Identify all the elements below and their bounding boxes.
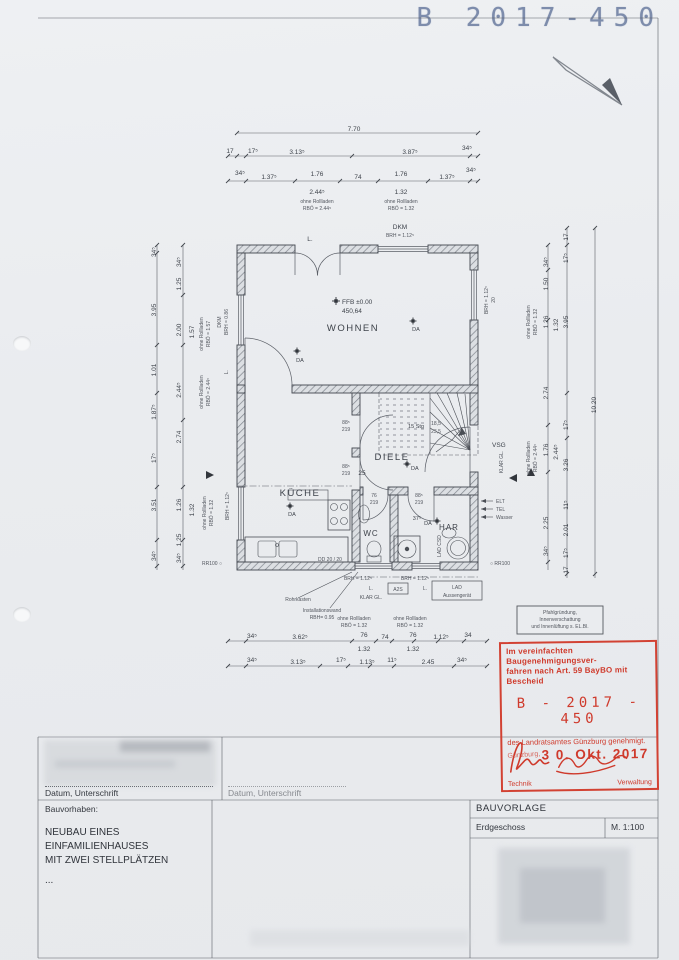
note-label: ohne Rollladen xyxy=(384,199,418,205)
svg-text:Innenverschattung: Innenverschattung xyxy=(539,617,580,623)
dim-label: 1.26 xyxy=(176,498,183,511)
dim-label: 34⁵ xyxy=(543,546,550,556)
signature-right xyxy=(557,756,627,775)
note-label: RBÖ = 2.44⁵ xyxy=(205,378,212,406)
level-label: 450,64 xyxy=(342,308,362,315)
dim-label: 1.12⁵ xyxy=(433,634,449,641)
stamp-text-line: Im vereinfachten Baugenehmigungsver- xyxy=(506,645,650,667)
dim-label: 2.44⁵ xyxy=(176,382,183,398)
project-line: EINFAMILIENHAUSES xyxy=(45,840,168,854)
glass-label: KLAR GL. xyxy=(360,595,383,601)
da-label: DA xyxy=(288,512,296,518)
project-line: ... xyxy=(45,874,168,888)
note-label: RBÖ = 1.57 xyxy=(205,321,212,347)
note-label: ohne Rollladen xyxy=(202,496,208,530)
dim-label: 1.76 xyxy=(543,443,550,456)
note-label: DD 20 / 20 xyxy=(318,557,342,563)
dim-label: 1.26 xyxy=(543,315,550,328)
dim-label: 34⁵ xyxy=(543,257,550,267)
note-label: ohne Rollladen xyxy=(526,305,532,339)
stamp-text-line: fahren nach Art. 59 BayBO mit Bescheid xyxy=(506,665,650,687)
dim-label: 34⁵ xyxy=(235,170,245,177)
stamp-file-number: B - 2017 - 450 xyxy=(507,694,651,728)
da-label: DA xyxy=(296,358,304,364)
scanned-floorplan-sheet: B 2017-450 xyxy=(0,0,679,960)
dim-label: 17 xyxy=(563,233,570,241)
note-label: Installationswand xyxy=(303,608,342,614)
dim-label: 17⁵ xyxy=(563,548,570,558)
dim-label: 34⁵ xyxy=(176,553,183,563)
dim-label: 3.13⁵ xyxy=(290,659,306,666)
note-label: RBÖ = 2.44⁵ xyxy=(303,205,331,212)
note-label: RBÖ = 1.32 xyxy=(532,309,539,335)
dim-label: 76 xyxy=(409,632,417,639)
dim-label: 7.70 xyxy=(348,126,361,133)
dim-label: 34 xyxy=(464,632,472,639)
dim-label: 34⁵ xyxy=(466,167,476,174)
dim-label: 1.37⁵ xyxy=(439,174,455,181)
note-label: ohne Rollladen xyxy=(526,441,532,475)
svg-text:Pfahlgründung,: Pfahlgründung, xyxy=(543,610,577,616)
bauvorlage-label: BAUVORLAGE xyxy=(476,803,546,814)
dim-label: 25 xyxy=(358,470,366,477)
dim-label: 34⁵ xyxy=(247,633,257,640)
dim-label: 17⁵ xyxy=(563,253,570,263)
stair-label: 15 Stg xyxy=(408,424,424,430)
north-arrow-icon xyxy=(553,57,622,105)
wall-label: DKM xyxy=(217,316,223,327)
dim-label: 3.51 xyxy=(151,498,158,511)
stairs xyxy=(379,393,478,455)
glass-label: KLAR GL. xyxy=(499,451,505,474)
note-label: ohne Rollladen xyxy=(300,199,334,205)
level-label: FFB ±0.00 xyxy=(342,299,373,306)
door-size-label: 88⁵ xyxy=(415,493,423,499)
signature-line xyxy=(228,786,346,787)
dim-label: 2.01 xyxy=(563,523,570,536)
project-line: MIT ZWEI STELLPLÄTZEN xyxy=(45,854,168,868)
note-label: Rohrkasten xyxy=(285,597,311,603)
drain-label: RR100 ○ xyxy=(202,561,222,567)
dim-label: 34⁵ xyxy=(247,657,257,664)
room-label-wohnen: WOHNEN xyxy=(327,323,379,334)
note-label: RBH= 0.95 xyxy=(310,615,335,621)
dim-label: 1.76 xyxy=(311,171,324,178)
wall-label: 20 xyxy=(491,297,497,303)
stair-label: 23,5 xyxy=(431,429,441,435)
har-fixtures xyxy=(394,528,469,562)
wall-label: BRH = 1.12⁵ xyxy=(484,286,490,314)
dim-label: 37⁵ xyxy=(413,515,421,522)
note-label: RBÖ = 1.32 xyxy=(388,205,414,212)
da-label: DA xyxy=(424,521,432,527)
dim-label: 1.01 xyxy=(151,363,158,376)
wall-label: DKM xyxy=(393,224,407,231)
dim-label: 1.13⁵ xyxy=(359,659,375,666)
door-size-label: 219 xyxy=(370,500,379,506)
svg-text:und Innenlüftung s. EL.Bl.: und Innenlüftung s. EL.Bl. xyxy=(531,624,588,630)
wall-label: L. xyxy=(369,586,373,592)
utility-label: TEL xyxy=(496,507,505,513)
project-description: NEUBAU EINES EINFAMILIENHAUSES MIT ZWEI … xyxy=(45,826,168,888)
dim-label: 17 xyxy=(563,566,570,574)
dim-label: 34⁵ xyxy=(457,657,467,664)
dim-label: 3.13⁵ xyxy=(289,149,305,156)
dim-label: 17 xyxy=(226,148,234,155)
stair-label: 18,5 xyxy=(431,421,441,427)
wall-label: BRH = 1.12⁵ xyxy=(401,576,429,582)
dim-label: 2.45 xyxy=(422,659,435,666)
dim-label: 2.74 xyxy=(176,430,183,443)
door-size-label: 219 xyxy=(342,427,351,433)
dim-label: 1.32 xyxy=(358,646,371,653)
dim-label: 3.95 xyxy=(151,303,158,316)
note-label: RBÖ = 1.32 xyxy=(397,622,423,629)
room-label-har: HAR xyxy=(439,523,459,532)
dim-label: 1.25 xyxy=(176,533,183,546)
note-label: ohne Rollladen xyxy=(199,317,205,351)
dim-label: 74 xyxy=(381,634,389,641)
dim-label: 34⁵ xyxy=(176,257,183,267)
dim-label: 1.50 xyxy=(543,277,550,290)
scan-smudge xyxy=(250,930,470,946)
room-label-wc: WC xyxy=(363,529,378,538)
stamp-signatures xyxy=(504,730,655,780)
dim-label: 11⁵ xyxy=(563,500,570,510)
dim-label: 2.74 xyxy=(543,386,550,399)
dim-label: 3.87⁵ xyxy=(402,149,418,156)
approval-stamp: Im vereinfachten Baugenehmigungsver- fah… xyxy=(499,640,659,792)
door-size-label: 88⁵ xyxy=(342,464,350,470)
foundation-note-box: Pfahlgründung, Innenverschattung und Inn… xyxy=(517,606,603,634)
dimension-lines xyxy=(155,131,597,668)
drain-label: ○ RR100 xyxy=(490,561,510,567)
stamp-footer-left: Technik xyxy=(508,781,532,788)
dim-label: 1.32 xyxy=(189,503,196,516)
redacted-text-fragment xyxy=(120,741,210,752)
dim-label: 74 xyxy=(354,174,362,181)
equipment-label: Aussengerät xyxy=(443,593,472,599)
dim-label: 17⁵ xyxy=(336,657,346,664)
dim-label: 1.32 xyxy=(553,318,560,331)
note-label: RBÖ = 1.32 xyxy=(208,500,215,526)
utility-label: Wasser xyxy=(496,515,513,521)
wall-label: BRH = 1.12⁵ xyxy=(386,233,414,239)
dim-label: 3.26 xyxy=(563,458,570,471)
wall-label: BRH = 1.12⁵ xyxy=(344,576,372,582)
bauvorhaben-label: Bauvorhaben: xyxy=(45,804,98,814)
equipment-label: LAD CSD xyxy=(437,535,443,557)
dim-label: 2.25 xyxy=(543,516,550,529)
wall-label: BRH = 1.12⁵ xyxy=(225,492,231,520)
project-line: NEUBAU EINES xyxy=(45,826,168,840)
dim-label: 3.62⁵ xyxy=(292,634,308,641)
kitchen-fixtures xyxy=(245,490,350,562)
dim-label: 11⁵ xyxy=(387,657,397,664)
da-label: DA xyxy=(411,466,419,472)
room-label-kueche: KÜCHE xyxy=(280,488,321,499)
note-label: ohne Rollladen xyxy=(199,375,205,409)
note-label: ohne Rollladen xyxy=(393,616,427,622)
dim-label: 17⁵ xyxy=(151,453,158,463)
dim-label: 1.87⁵ xyxy=(151,404,158,420)
dim-label: 76 xyxy=(360,632,368,639)
dim-label: 2.00 xyxy=(176,323,183,336)
dim-label: 34⁵ xyxy=(151,551,158,561)
wall-label: L. xyxy=(423,586,427,592)
room-label-diele: DIELE xyxy=(375,452,410,463)
stamp-footer-right: Verwaltung xyxy=(617,779,652,786)
wall-label: L. xyxy=(307,236,313,243)
dim-label: 1.76 xyxy=(395,171,408,178)
dim-label: 2.44⁵ xyxy=(309,189,325,196)
utility-label: ELT xyxy=(496,499,505,505)
door-size-label: 219 xyxy=(415,500,424,506)
signature-left xyxy=(510,742,548,772)
dim-label: 1.25 xyxy=(176,277,183,290)
note-label: RBÖ = 2.44⁵ xyxy=(532,444,539,472)
signature-caption-right: Datum, Unterschrift xyxy=(228,788,301,798)
dim-label: 1.37⁵ xyxy=(261,174,277,181)
dim-label: 1.57 xyxy=(189,325,196,338)
dim-label: 17⁵ xyxy=(563,420,570,430)
note-label: ohne Rollladen xyxy=(337,616,371,622)
wall-label: BRH = 0.86 xyxy=(224,309,230,335)
note-label: RBÖ = 1.32 xyxy=(341,622,367,629)
wall-label: L. xyxy=(224,370,230,374)
dim-label: 34⁵ xyxy=(462,145,472,152)
floor-label: Erdgeschoss xyxy=(476,822,525,832)
da-label: DA xyxy=(412,327,420,333)
dim-label: 3.95 xyxy=(563,315,570,328)
glass-label: VSG xyxy=(492,442,506,449)
equipment-label: LAD xyxy=(452,585,462,591)
scale-label: M. 1:100 xyxy=(611,822,644,832)
dim-label: 1.32 xyxy=(395,189,408,196)
dim-label: 1.32 xyxy=(407,646,420,653)
door-size-label: 76 xyxy=(371,493,377,499)
floorplan-drawing: 7.70 17 17⁵ 3.13⁵ 3.87⁵ 34⁵ 34⁵ 1.37⁵ 1.… xyxy=(0,0,679,960)
door-size-label: 219 xyxy=(342,471,351,477)
redacted-area xyxy=(55,760,175,768)
dim-label: 2.44⁵ xyxy=(553,444,560,460)
door-size-label: 88⁵ xyxy=(342,420,350,426)
page-frame xyxy=(38,18,658,958)
dim-label: 10.20 xyxy=(591,396,598,413)
dim-label: 17⁵ xyxy=(248,148,258,155)
signature-caption-left: Datum, Unterschrift xyxy=(45,788,118,798)
equipment-label: A2S xyxy=(393,587,403,593)
dim-label: 34⁵ xyxy=(151,247,158,257)
redacted-stamp-area xyxy=(520,868,605,923)
signature-line xyxy=(45,786,213,787)
